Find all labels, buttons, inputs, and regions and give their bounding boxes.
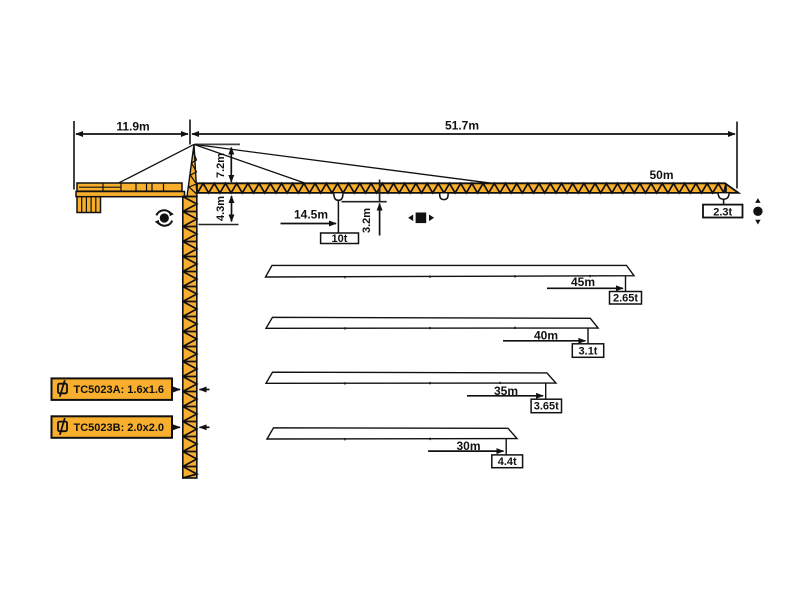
svg-text:50m: 50m: [649, 168, 673, 182]
svg-text:4.3m: 4.3m: [215, 196, 227, 221]
svg-text:35m: 35m: [494, 384, 518, 398]
svg-text:40m: 40m: [534, 328, 558, 342]
svg-text:7.2m: 7.2m: [215, 153, 227, 178]
svg-text:10t: 10t: [332, 233, 348, 245]
svg-text:TC5023B: 2.0x2.0: TC5023B: 2.0x2.0: [74, 422, 165, 434]
svg-text:45m: 45m: [571, 275, 595, 289]
svg-text:3.2m: 3.2m: [361, 208, 373, 233]
svg-text:14.5m: 14.5m: [294, 208, 328, 222]
svg-text:2.3t: 2.3t: [713, 206, 732, 218]
svg-text:30m: 30m: [456, 439, 480, 453]
svg-text:TC5023A: 1.6x1.6: TC5023A: 1.6x1.6: [74, 384, 165, 396]
svg-text:11.9m: 11.9m: [116, 120, 149, 134]
svg-text:4.4t: 4.4t: [498, 456, 517, 468]
svg-text:51.7m: 51.7m: [445, 119, 479, 133]
svg-text:3.1t: 3.1t: [579, 345, 598, 357]
svg-text:2.65t: 2.65t: [613, 293, 638, 305]
svg-text:3.65t: 3.65t: [534, 401, 559, 413]
